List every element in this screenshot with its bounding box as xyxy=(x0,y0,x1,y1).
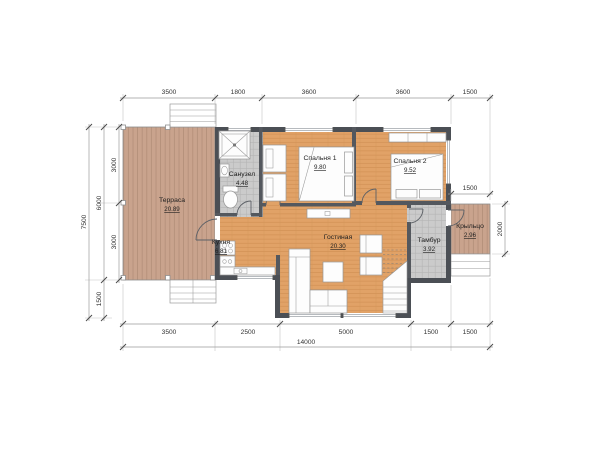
toilet xyxy=(223,186,238,208)
area-bedroom2: 9.52 xyxy=(404,167,417,174)
dim-left-outer: 7500 xyxy=(81,214,88,229)
area-porch: 2.96 xyxy=(464,232,477,239)
dim-right-porch-height: 2000 xyxy=(497,221,504,236)
dim-top-2: 1800 xyxy=(231,89,246,96)
dim-left-mid-lower: 1500 xyxy=(96,291,103,306)
dim-left-inner-upper: 3000 xyxy=(111,157,118,172)
window-bedroom1 xyxy=(285,127,333,132)
area-vestibule: 3.92 xyxy=(423,246,436,253)
area-bedroom1: 9.80 xyxy=(314,164,327,171)
label-bedroom2: Спальня 2 xyxy=(394,158,427,165)
label-kitchen: Кухня xyxy=(212,239,231,246)
label-vestibule: Тамбур xyxy=(417,236,440,244)
terrace-steps-bottom xyxy=(170,280,216,303)
dim-top-1: 3500 xyxy=(162,89,177,96)
kitchen-counter xyxy=(220,267,275,275)
dim-right-porch-width: 1500 xyxy=(463,185,478,192)
window-living-a xyxy=(289,313,341,318)
dim-bottom-3: 5000 xyxy=(339,329,354,336)
window-kitchen xyxy=(237,275,273,280)
area-living: 20.30 xyxy=(330,243,346,250)
washbasin xyxy=(220,164,229,177)
dim-bottom-5: 1500 xyxy=(463,329,478,336)
label-living: Гостиная xyxy=(324,234,353,241)
dim-top-4: 3600 xyxy=(396,89,411,96)
label-terrace: Терраса xyxy=(159,197,185,204)
label-bathroom: Санузел xyxy=(229,171,256,178)
dresser-bedroom2 xyxy=(389,133,446,142)
dim-top-3: 3600 xyxy=(302,89,317,96)
label-porch: Крыльцо xyxy=(456,223,484,230)
coffee-table xyxy=(323,262,343,282)
dim-top-5: 1500 xyxy=(463,89,478,96)
porch-steps xyxy=(451,254,490,276)
window-bedroom2-east xyxy=(446,140,451,184)
floor-plan-drawing: Терраса 20.89 Санузел 4.48 Спальня 1 9.8… xyxy=(0,0,600,463)
area-bathroom: 4.48 xyxy=(236,180,249,187)
tv-console xyxy=(307,209,350,218)
dim-bottom-4: 1500 xyxy=(424,329,439,336)
floor-plan-page: Терраса 20.89 Санузел 4.48 Спальня 1 9.8… xyxy=(0,0,600,463)
window-bedroom2 xyxy=(383,127,431,132)
dim-left-inner-lower: 3000 xyxy=(111,234,118,249)
terrace-steps-top xyxy=(170,104,216,127)
dim-bottom-total: 14000 xyxy=(297,339,316,346)
dim-bottom-1: 3500 xyxy=(162,329,177,336)
shower xyxy=(219,131,250,159)
dim-bottom-2: 2500 xyxy=(241,329,256,336)
dim-left-mid-upper: 6000 xyxy=(96,195,103,210)
label-bedroom1: Спальня 1 xyxy=(304,155,337,162)
kitchen-unit xyxy=(220,256,235,267)
area-kitchen: 6.81 xyxy=(215,248,228,255)
area-terrace: 20.89 xyxy=(164,206,180,213)
window-living-b xyxy=(343,313,396,318)
